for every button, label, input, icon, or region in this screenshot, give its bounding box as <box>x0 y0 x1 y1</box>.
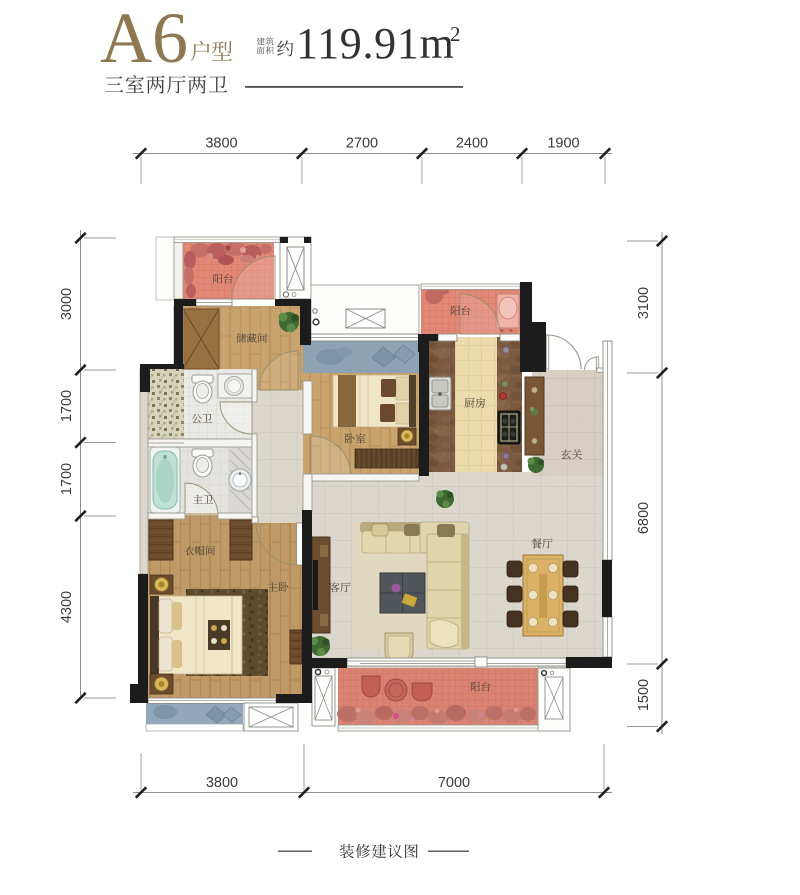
svg-text:1900: 1900 <box>547 136 579 152</box>
svg-text:4300: 4300 <box>59 591 75 623</box>
svg-text:2: 2 <box>450 22 461 46</box>
svg-text:3000: 3000 <box>59 288 75 320</box>
svg-text:7000: 7000 <box>438 775 470 791</box>
svg-text:3800: 3800 <box>206 775 238 791</box>
svg-text:1500: 1500 <box>636 679 652 711</box>
svg-text:2400: 2400 <box>456 136 488 152</box>
svg-text:2700: 2700 <box>346 136 378 152</box>
svg-text:3800: 3800 <box>205 136 237 152</box>
svg-text:119.91m: 119.91m <box>296 19 455 68</box>
svg-text:A6: A6 <box>100 0 188 78</box>
svg-text:1700: 1700 <box>59 463 75 495</box>
svg-text:3100: 3100 <box>636 287 652 319</box>
svg-text:6800: 6800 <box>636 502 652 534</box>
svg-text:1700: 1700 <box>59 390 75 422</box>
